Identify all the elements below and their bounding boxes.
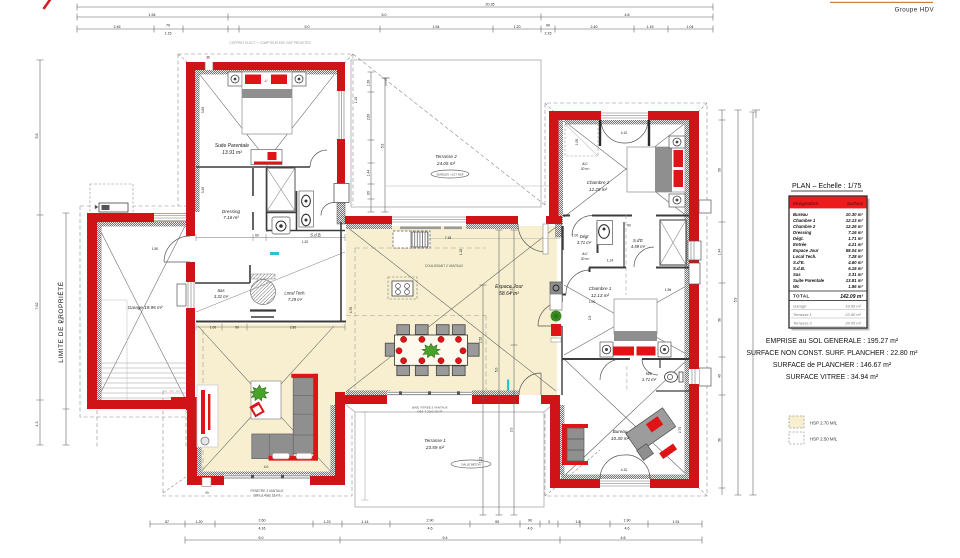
svg-text:13.91 m²: 13.91 m² xyxy=(222,150,242,156)
svg-text:7.18: 7.18 xyxy=(445,236,452,240)
svg-text:1.96: 1.96 xyxy=(665,288,672,292)
svg-text:5.0: 5.0 xyxy=(305,25,310,29)
svg-text:1.15: 1.15 xyxy=(165,32,172,36)
svg-text:58: 58 xyxy=(718,318,722,322)
svg-text:90: 90 xyxy=(528,519,532,523)
svg-text:S.d'E: S.d'E xyxy=(633,238,643,243)
svg-text:58: 58 xyxy=(718,438,722,442)
svg-text:Terrasse 1: Terrasse 1 xyxy=(424,438,446,443)
svg-text:90: 90 xyxy=(546,24,550,28)
svg-text:7.16 m²: 7.16 m² xyxy=(223,215,239,220)
svg-text:4.10: 4.10 xyxy=(621,468,628,472)
svg-text:DIM. 7.20x2.15 HT: DIM. 7.20x2.15 HT xyxy=(417,410,442,414)
svg-text:3.0: 3.0 xyxy=(510,428,514,433)
svg-text:2.15: 2.15 xyxy=(545,32,552,36)
svg-text:4.3: 4.3 xyxy=(35,422,39,427)
svg-text:Chambre 2: Chambre 2 xyxy=(587,180,610,185)
svg-text:1.00: 1.00 xyxy=(210,326,217,330)
svg-text:40: 40 xyxy=(718,374,722,378)
svg-text:59: 59 xyxy=(718,168,722,172)
svg-text:Dégt.: Dégt. xyxy=(793,236,804,241)
svg-text:1.71 m²: 1.71 m² xyxy=(642,377,657,382)
svg-text:Chambre 2: Chambre 2 xyxy=(793,224,816,229)
svg-text:Garage: Garage xyxy=(793,304,807,309)
svg-text:Garage 19.95 m²: Garage 19.95 m² xyxy=(128,305,163,310)
svg-text:12.29 m²: 12.29 m² xyxy=(589,187,608,192)
svg-text:Wc: Wc xyxy=(793,284,800,289)
svg-text:60: 60 xyxy=(367,191,371,195)
svg-text:A/C: A/C xyxy=(581,252,588,256)
svg-text:5.8: 5.8 xyxy=(35,134,39,139)
svg-text:23.59 m²: 23.59 m² xyxy=(425,445,445,450)
svg-text:SURFACE de PLANCHER : 146.67 m: SURFACE de PLANCHER : 146.67 m² xyxy=(773,362,892,369)
svg-text:7.29 m²: 7.29 m² xyxy=(288,297,303,302)
svg-text:2.70: 2.70 xyxy=(678,427,682,434)
svg-text:9.4: 9.4 xyxy=(443,536,448,540)
svg-text:10.30 m²: 10.30 m² xyxy=(611,436,630,441)
svg-text:2.45: 2.45 xyxy=(114,25,121,29)
svg-text:1.14: 1.14 xyxy=(607,259,614,263)
svg-text:4.16: 4.16 xyxy=(259,527,266,531)
svg-text:1.00: 1.00 xyxy=(589,300,596,304)
svg-text:1.14: 1.14 xyxy=(362,520,369,524)
svg-text:4.6: 4.6 xyxy=(61,318,65,323)
svg-text:COFFRET ELECT. + COMPTEUR EDF: COFFRET ELECT. + COMPTEUR EDF GDF PROJET… xyxy=(229,41,310,45)
svg-text:COULISSANT 2 VANTAUX: COULISSANT 2 VANTAUX xyxy=(425,264,464,268)
svg-text:1.91: 1.91 xyxy=(673,520,680,524)
svg-text:36: 36 xyxy=(206,56,210,60)
svg-text:S.d'E.: S.d'E. xyxy=(793,260,805,265)
svg-text:12.13 m²: 12.13 m² xyxy=(846,218,864,223)
svg-text:58.04 m²: 58.04 m² xyxy=(846,248,864,253)
svg-text:12.26 m²: 12.26 m² xyxy=(846,224,864,229)
svg-text:Local Tech.: Local Tech. xyxy=(284,291,305,296)
svg-text:1.20: 1.20 xyxy=(514,25,521,29)
svg-text:2.60: 2.60 xyxy=(367,114,371,121)
svg-text:4.76: 4.76 xyxy=(349,307,353,314)
svg-text:20.35: 20.35 xyxy=(486,3,495,7)
svg-text:5.0: 5.0 xyxy=(259,536,264,540)
svg-text:Terrasse 2: Terrasse 2 xyxy=(793,321,813,326)
svg-text:5.0: 5.0 xyxy=(495,368,499,373)
svg-text:1.44: 1.44 xyxy=(718,249,722,256)
svg-text:SURELEV. +0.17 NGF: SURELEV. +0.17 NGF xyxy=(436,173,463,177)
svg-text:SURFACE VITREE : 34.94 m²: SURFACE VITREE : 34.94 m² xyxy=(786,374,879,381)
svg-text:Groupe HDV: Groupe HDV xyxy=(895,7,935,14)
svg-text:SURFACE NON CONST. SURF. PLANC: SURFACE NON CONST. SURF. PLANCHER : 22.8… xyxy=(746,350,918,357)
svg-text:1.23: 1.23 xyxy=(324,520,331,524)
svg-text:1.71 m²: 1.71 m² xyxy=(848,236,863,241)
svg-text:57: 57 xyxy=(165,520,169,524)
svg-text:10.30 m²: 10.30 m² xyxy=(846,212,864,217)
svg-text:4.10: 4.10 xyxy=(621,131,628,135)
svg-text:30 m³: 30 m³ xyxy=(581,257,591,261)
svg-text:3.31 m²: 3.31 m² xyxy=(848,272,863,277)
svg-text:2.80: 2.80 xyxy=(290,326,297,330)
svg-text:Chambre 1: Chambre 1 xyxy=(589,286,612,291)
svg-text:Suite Parentale: Suite Parentale xyxy=(215,143,249,149)
svg-text:1.6: 1.6 xyxy=(576,520,581,524)
svg-text:24.05 m²: 24.05 m² xyxy=(844,321,861,326)
svg-text:Sas: Sas xyxy=(217,288,225,293)
svg-text:4.60 m²: 4.60 m² xyxy=(847,260,863,265)
svg-text:95: 95 xyxy=(495,520,499,524)
svg-text:2.40: 2.40 xyxy=(591,25,598,29)
svg-text:7.28 m²: 7.28 m² xyxy=(848,254,863,259)
svg-text:Surface: Surface xyxy=(847,201,864,206)
svg-text:TOTAL: TOTAL xyxy=(793,294,810,299)
svg-text:Local Tech.: Local Tech. xyxy=(793,254,816,259)
svg-text:3.40: 3.40 xyxy=(201,187,205,194)
svg-text:Terrasse 2: Terrasse 2 xyxy=(435,154,457,159)
svg-text:1.54: 1.54 xyxy=(149,13,156,17)
svg-text:7.62: 7.62 xyxy=(35,303,39,310)
svg-text:PLAN – Echelle : 1/75: PLAN – Echelle : 1/75 xyxy=(792,182,861,190)
svg-text:1.04: 1.04 xyxy=(687,25,694,29)
svg-text:95: 95 xyxy=(205,491,209,495)
svg-text:1.54: 1.54 xyxy=(433,25,440,29)
svg-text:Dressing: Dressing xyxy=(793,230,812,235)
svg-text:5.0: 5.0 xyxy=(382,13,387,17)
svg-text:Bureau: Bureau xyxy=(793,212,808,217)
svg-text:1.20: 1.20 xyxy=(196,520,203,524)
svg-text:3.85: 3.85 xyxy=(201,107,205,114)
svg-text:19.95 m²: 19.95 m² xyxy=(845,304,861,309)
svg-text:4.8: 4.8 xyxy=(625,13,630,17)
svg-text:S.d.B.: S.d.B. xyxy=(310,233,321,238)
svg-text:Espace Jour: Espace Jour xyxy=(793,248,819,253)
svg-text:4.59 m²: 4.59 m² xyxy=(631,244,646,249)
svg-text:HSP 2.50 M/L: HSP 2.50 M/L xyxy=(810,437,838,442)
svg-text:2.9: 2.9 xyxy=(588,316,592,321)
svg-text:1.86 m²: 1.86 m² xyxy=(848,284,863,289)
svg-text:A/C: A/C xyxy=(581,162,588,166)
svg-text:142.09 m²: 142.09 m² xyxy=(840,294,863,300)
svg-text:1.10: 1.10 xyxy=(354,97,358,104)
svg-text:3.71 m²: 3.71 m² xyxy=(577,240,592,245)
svg-text:1.00: 1.00 xyxy=(575,139,579,146)
svg-text:1.00: 1.00 xyxy=(572,234,579,238)
svg-text:5.9: 5.9 xyxy=(734,298,738,303)
svg-text:30 m³: 30 m³ xyxy=(581,167,591,171)
svg-text:90: 90 xyxy=(235,326,239,330)
svg-text:Bureau: Bureau xyxy=(613,429,628,434)
svg-text:1.13: 1.13 xyxy=(479,457,483,464)
svg-text:1.50: 1.50 xyxy=(152,247,159,251)
svg-text:3.31 m²: 3.31 m² xyxy=(214,294,229,299)
svg-text:1.00: 1.00 xyxy=(367,80,371,87)
svg-text:1.90: 1.90 xyxy=(624,519,631,523)
svg-text:70: 70 xyxy=(166,24,170,28)
svg-text:2.60: 2.60 xyxy=(259,519,266,523)
svg-text:4.6: 4.6 xyxy=(428,527,433,531)
svg-text:4.6: 4.6 xyxy=(621,536,626,540)
svg-text:Suite Parentale: Suite Parentale xyxy=(793,278,825,283)
svg-text:S.d.B.: S.d.B. xyxy=(793,266,805,271)
svg-text:1.44: 1.44 xyxy=(367,170,371,177)
svg-text:Sas: Sas xyxy=(793,272,801,277)
svg-text:24.05 m²: 24.05 m² xyxy=(436,161,456,166)
svg-text:HSP 2.70 M/L: HSP 2.70 M/L xyxy=(810,421,838,426)
svg-text:23.60 m²: 23.60 m² xyxy=(844,312,861,317)
svg-text:4.6: 4.6 xyxy=(625,527,630,531)
svg-text:1.13: 1.13 xyxy=(510,287,514,294)
svg-text:3: 3 xyxy=(548,520,550,524)
svg-text:1.20: 1.20 xyxy=(302,240,309,244)
svg-text:Dressing: Dressing xyxy=(222,209,241,214)
svg-text:Désignation: Désignation xyxy=(793,201,818,206)
svg-text:FENETRE 3 VANTAUX: FENETRE 3 VANTAUX xyxy=(251,489,285,493)
svg-text:60: 60 xyxy=(255,234,259,238)
svg-text:Wc: Wc xyxy=(646,371,653,376)
svg-text:13.81 m²: 13.81 m² xyxy=(846,278,864,283)
svg-text:4.21 m²: 4.21 m² xyxy=(847,242,863,247)
svg-text:EMPRISE au SOL GENERALE : 195.: EMPRISE au SOL GENERALE : 195.27 m² xyxy=(766,338,899,345)
svg-text:5.9: 5.9 xyxy=(381,144,385,149)
svg-text:Chambre 1: Chambre 1 xyxy=(793,218,816,223)
svg-text:4.0: 4.0 xyxy=(264,465,269,469)
svg-text:1.18: 1.18 xyxy=(459,249,463,256)
svg-text:12.13 m²: 12.13 m² xyxy=(591,293,610,298)
svg-text:6.15 m²: 6.15 m² xyxy=(848,266,863,271)
svg-text:Entrée: Entrée xyxy=(793,242,807,247)
svg-text:Dégt: Dégt xyxy=(580,234,590,239)
svg-text:1.15: 1.15 xyxy=(647,25,654,29)
svg-text:DIM. 2.40x2.15 HT: DIM. 2.40x2.15 HT xyxy=(254,494,281,498)
svg-text:7.16 m²: 7.16 m² xyxy=(848,230,863,235)
svg-text:4.6: 4.6 xyxy=(528,527,533,531)
svg-text:2.52: 2.52 xyxy=(479,337,483,344)
svg-text:Terrasse 1: Terrasse 1 xyxy=(793,312,812,317)
svg-text:2.90: 2.90 xyxy=(427,519,434,523)
svg-text:90: 90 xyxy=(627,224,631,228)
